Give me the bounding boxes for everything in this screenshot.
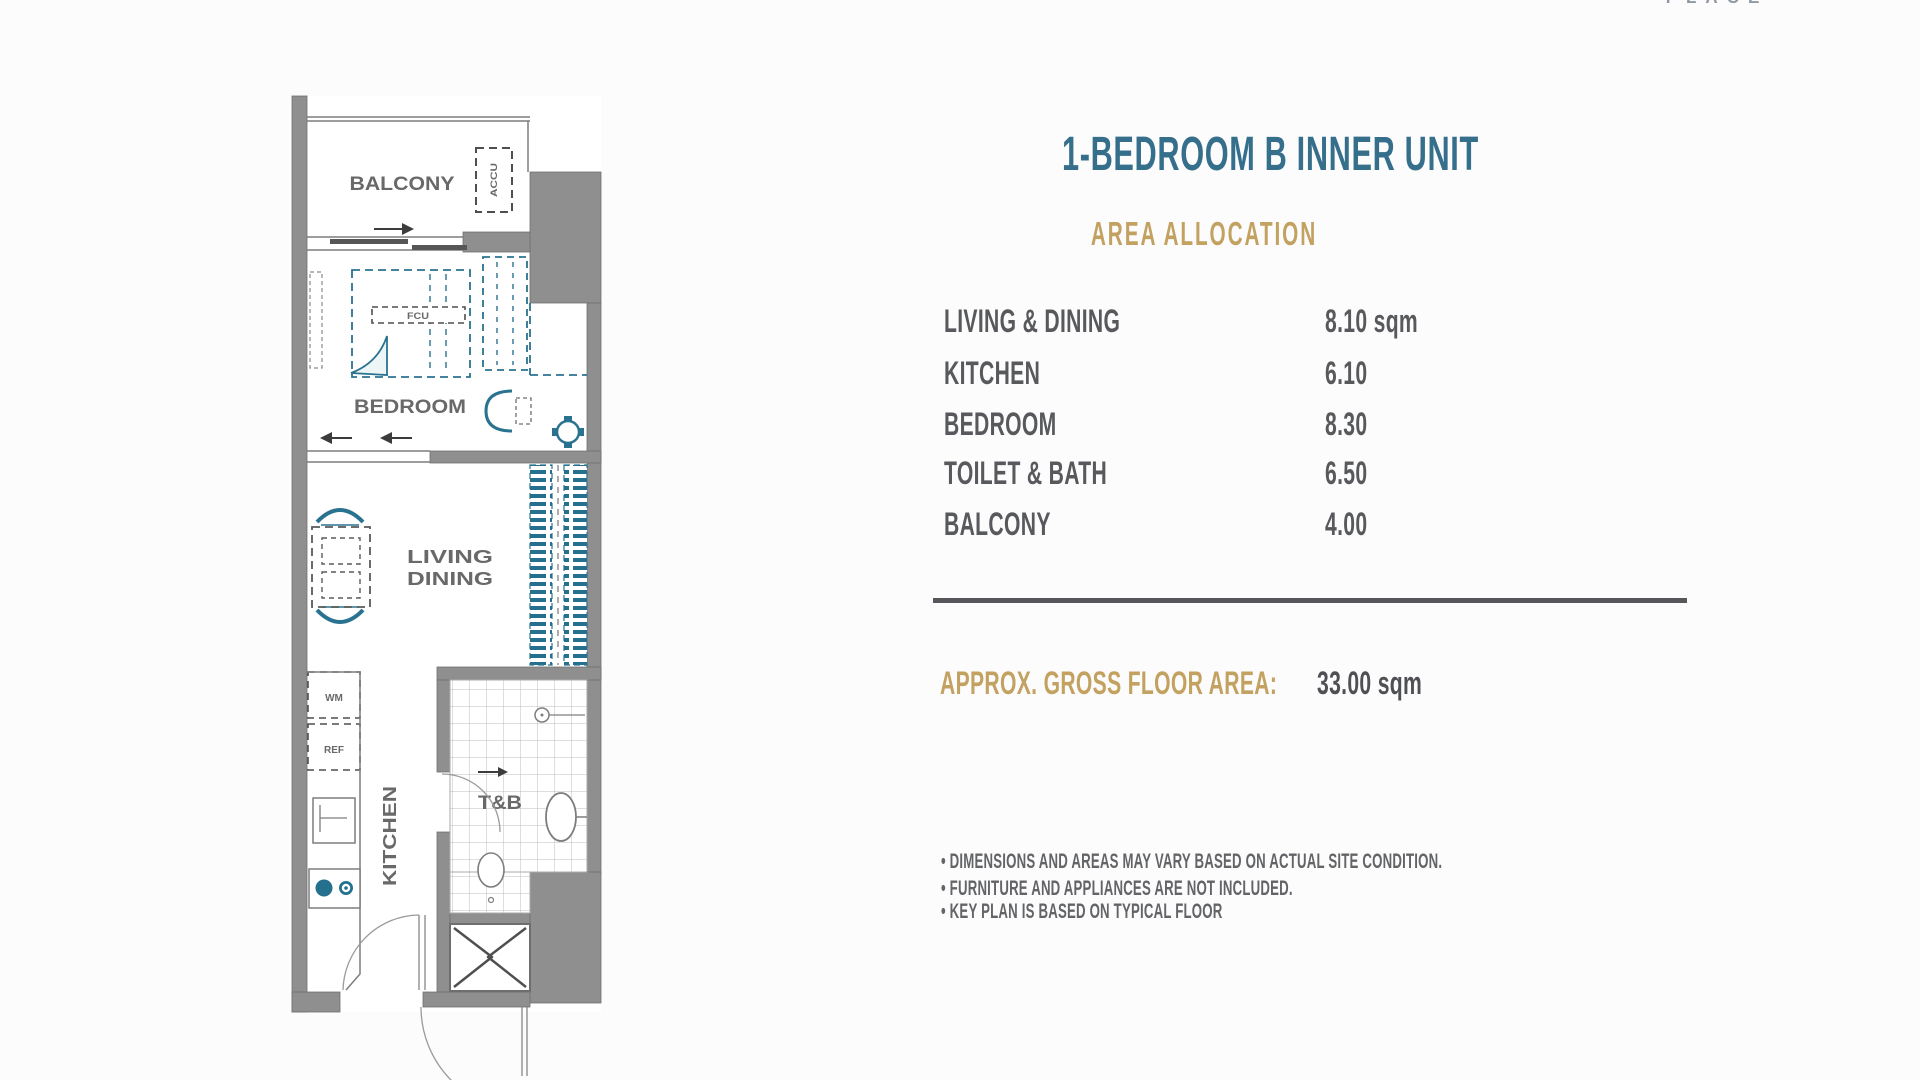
wall-bedroom-living <box>430 451 601 463</box>
unit-title: 1-BEDROOM B INNER UNIT <box>1062 127 1446 182</box>
room-label-tb: T&B <box>478 793 522 814</box>
room-label-dining: DINING <box>407 569 493 589</box>
note-dimensions: • DIMENSIONS AND AREAS MAY VARY BASED ON… <box>941 850 1442 874</box>
area-row-value: 6.50 <box>1325 455 1367 492</box>
wall-bottom-mid <box>423 992 530 1007</box>
tb-tiled-floor <box>450 680 587 872</box>
area-row-label: TOILET & BATH <box>944 455 1107 492</box>
wall-left <box>292 96 307 1012</box>
divider <box>933 598 1687 603</box>
wall-column-bottom-right <box>530 872 601 1003</box>
area-row-label: BEDROOM <box>944 406 1057 443</box>
hallway-door <box>421 1007 527 1080</box>
gross-floor-area-label: APPROX. GROSS FLOOR AREA: <box>940 665 1277 702</box>
fixture-label-accu: ACCU <box>489 163 499 197</box>
fixture-label-wm: WM <box>325 693 343 704</box>
kitchen-sink-icon <box>313 798 355 843</box>
gross-floor-area-value: 33.00 sqm <box>1317 665 1422 702</box>
fixture-label-ref: REF <box>324 745 344 756</box>
area-row-balcony: BALCONY 4.00 <box>944 506 1644 546</box>
area-row-value: 4.00 <box>1325 506 1367 543</box>
room-label-living: LIVING <box>407 547 493 567</box>
wall-tb-north <box>437 667 601 680</box>
area-row-bedroom: BEDROOM 8.30 <box>944 406 1644 446</box>
note-furniture: • FURNITURE AND APPLIANCES ARE NOT INCLU… <box>941 877 1293 901</box>
area-row-toilet-bath: TOILET & BATH 6.50 <box>944 455 1644 495</box>
wall-column-top-right <box>530 172 601 303</box>
stove-icon <box>309 869 360 908</box>
wall-bottom-left <box>292 992 340 1012</box>
area-row-label: BALCONY <box>944 506 1051 543</box>
shaft <box>450 924 530 991</box>
wall-shaft-band <box>450 913 530 924</box>
area-row-label: KITCHEN <box>944 355 1040 392</box>
area-row-label: LIVING & DINING <box>944 303 1120 340</box>
brand-logo-text: PLACE <box>1652 0 1782 8</box>
room-label-balcony: BALCONY <box>350 174 455 195</box>
area-row-value: 8.30 <box>1325 406 1367 443</box>
wall-right <box>587 303 601 873</box>
note-keyplan: • KEY PLAN IS BASED ON TYPICAL FLOOR <box>941 900 1222 924</box>
area-allocation-heading: AREA ALLOCATION <box>1078 215 1330 253</box>
area-row-value: 8.10 sqm <box>1325 303 1418 340</box>
room-label-bedroom: BEDROOM <box>354 397 466 418</box>
area-row-living-dining: LIVING & DINING 8.10 sqm <box>944 303 1644 343</box>
area-row-value: 6.10 <box>1325 355 1367 392</box>
fixture-label-fcu: FCU <box>407 311 429 321</box>
floor-plan-drawing: BALCONY ACCU FCU <box>180 60 660 1080</box>
wall-tb-west-lower <box>437 832 450 992</box>
floor-plan-svg: BALCONY ACCU FCU <box>180 60 660 1080</box>
wall-tb-west-upper <box>437 680 450 772</box>
floor-plan-sheet: PLACE <box>0 0 1920 1080</box>
wall-balcony-right-segment <box>463 232 530 252</box>
room-label-kitchen: KITCHEN <box>380 786 400 886</box>
area-row-kitchen: KITCHEN 6.10 <box>944 355 1644 395</box>
